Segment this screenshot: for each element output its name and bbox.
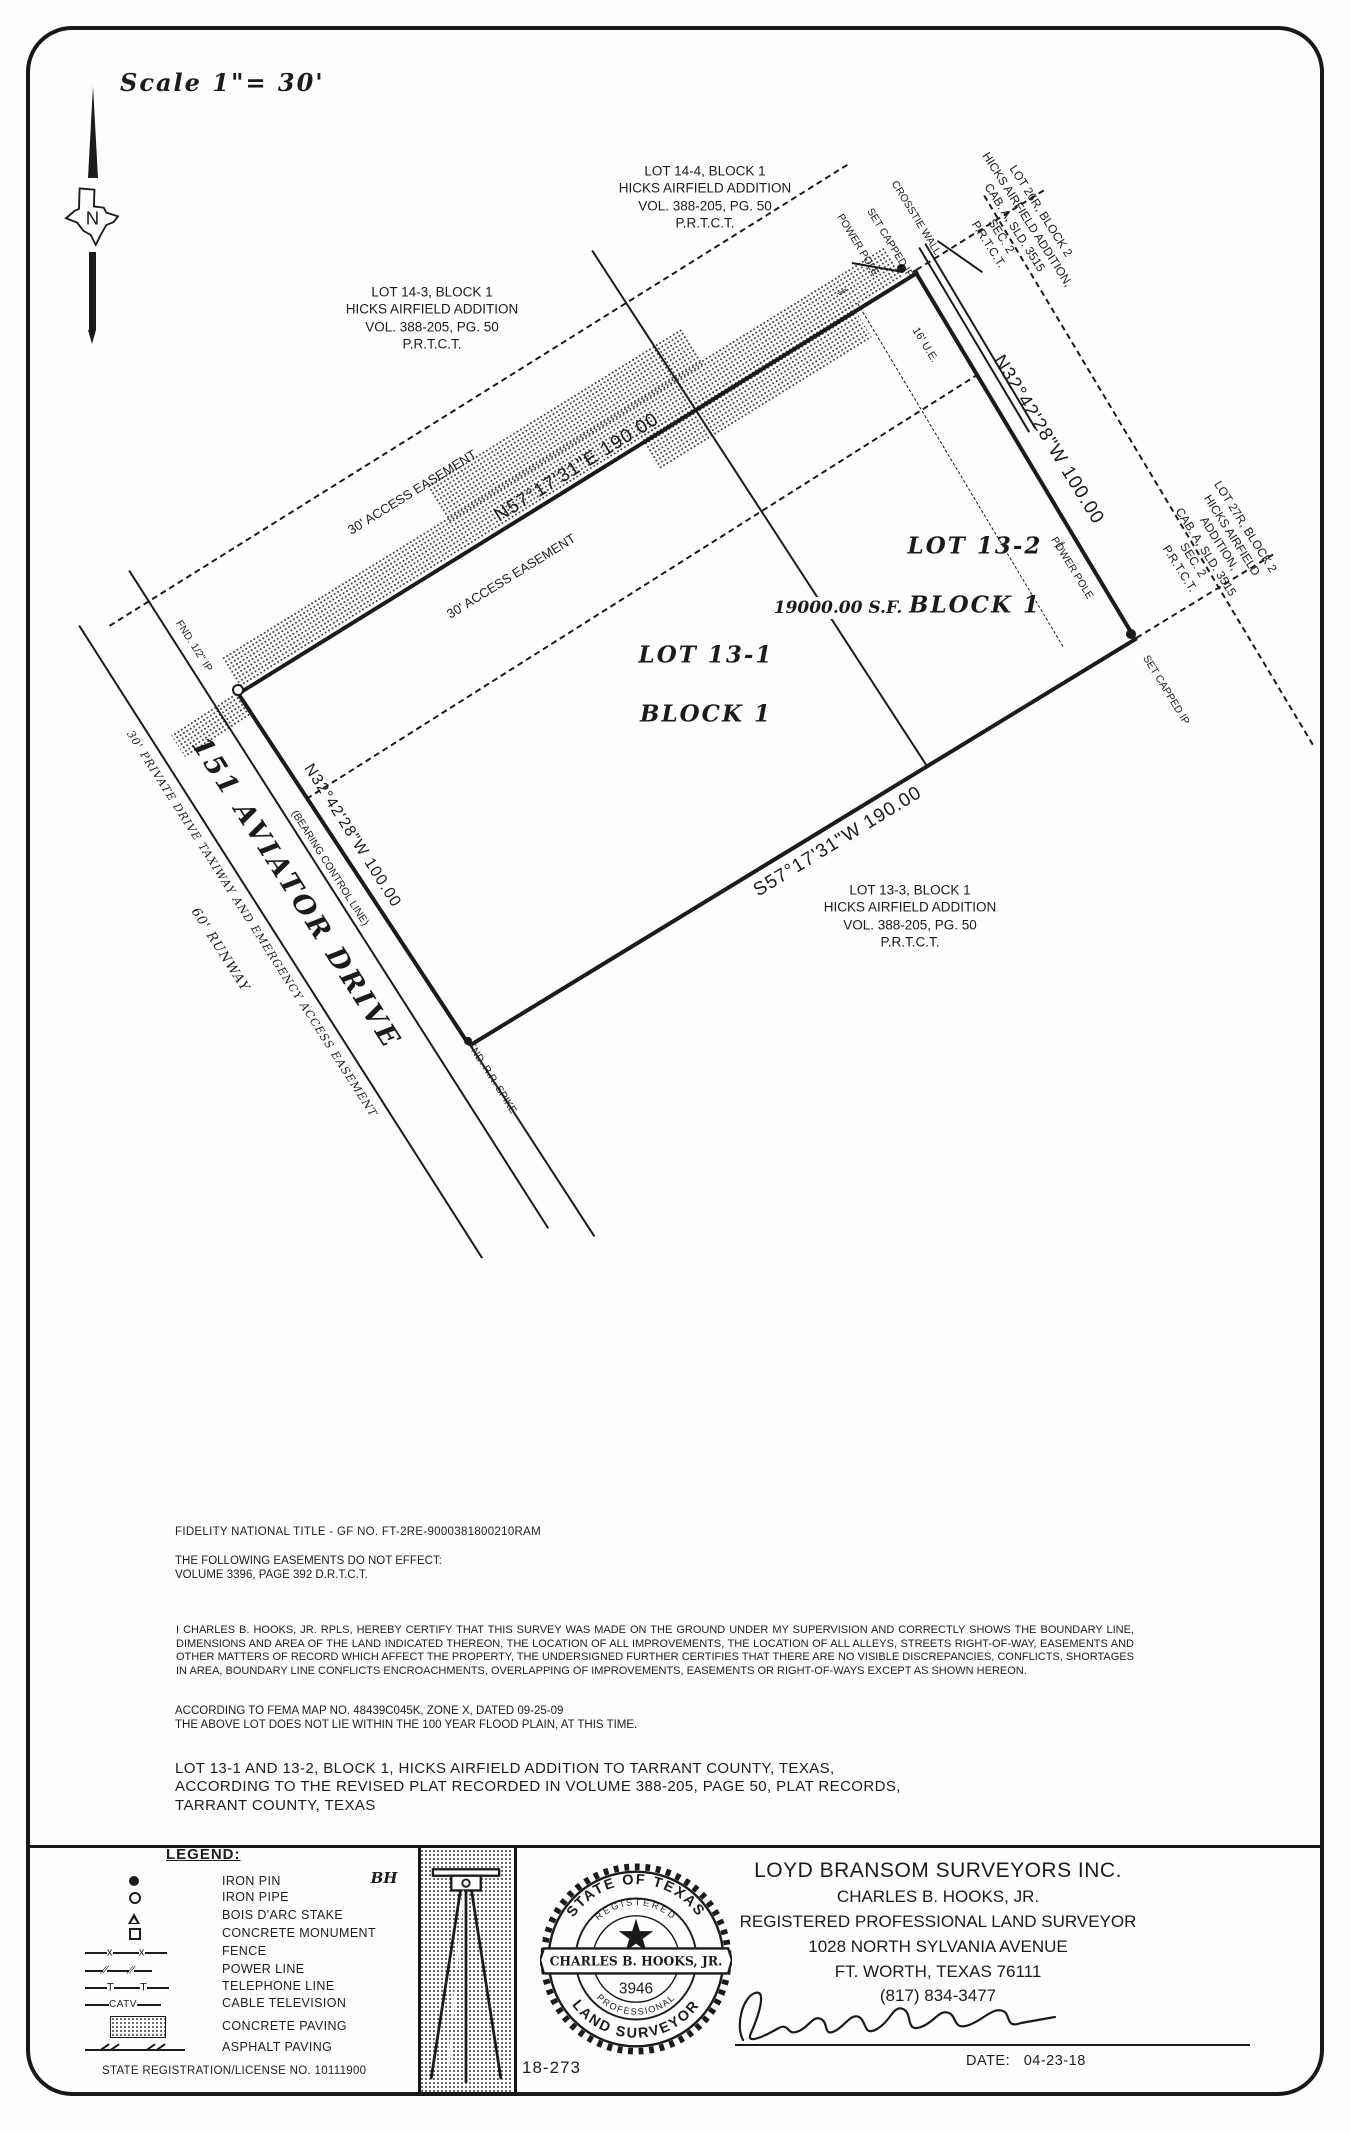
title-company-note: FIDELITY NATIONAL TITLE - GF NO. FT-2RE-…	[175, 1526, 541, 1538]
legend-symbol-bois-darc-stake-inner	[131, 1918, 137, 1923]
utility-easement-label: 16' U.E.	[910, 325, 941, 364]
tripod-panel	[420, 1849, 512, 2092]
legend-symbol-iron-pin	[129, 1876, 139, 1886]
adjoiner-lot-13-3: LOT 13-3, BLOCK 1 HICKS AIRFIELD ADDITIO…	[824, 881, 997, 950]
company-city: FT. WORTH, TEXAS 76111	[835, 1962, 1042, 1982]
legend-symbol-catv-line: CATV	[85, 1997, 161, 2011]
date-value: 04-23-18	[1024, 2053, 1086, 2069]
legend-symbol-telephone-line: TT	[85, 1980, 169, 1994]
lot-13-1-block: BLOCK 1	[639, 700, 774, 729]
tripod-illustration	[420, 1849, 512, 2092]
private-drive-easement-label: 30' PRIVATE DRIVE TAXIWAY AND EMERGENCY …	[124, 728, 380, 1119]
lot-13-2-number: LOT 13-2	[908, 532, 1043, 561]
legend-label: TELEPHONE LINE	[222, 1979, 335, 1993]
legend-symbol-concrete-monument	[129, 1928, 141, 1940]
seal-name: CHARLES B. HOOKS, JR.	[550, 1954, 723, 1970]
leader-line	[937, 240, 983, 273]
set-capped-ip-label: SET CAPPED IP	[1140, 653, 1192, 727]
legend-symbol-power-line: ∕∕∕∕	[85, 1963, 152, 1977]
north-arrow-tail-tip	[88, 330, 96, 344]
legend-symbol-iron-pipe	[129, 1892, 141, 1904]
adjoiner-lot-14-4: LOT 14-4, BLOCK 1 HICKS AIRFIELD ADDITIO…	[619, 162, 792, 231]
certification-note: I CHARLES B. HOOKS, JR. RPLS, HEREBY CER…	[176, 1624, 1134, 1679]
lot-13-1-label: LOT 13-1 BLOCK 1	[639, 611, 774, 758]
telephone-mark: T	[140, 1982, 147, 1994]
catv-mark: CATV	[109, 1999, 137, 2010]
legend-title: LEGEND:	[166, 1846, 241, 1863]
power-pole-label: POWER POLE	[1048, 535, 1095, 601]
legend-label: POWER LINE	[222, 1962, 305, 1976]
date-row: DATE: 04-23-18	[966, 2053, 1086, 2069]
surveyor-seal: STATE OF TEXAS LAND SURVEYOR REGISTERED …	[540, 1860, 732, 2058]
lot-13-2-label: LOT 13-2 BLOCK 1	[908, 502, 1043, 649]
legend-label: CABLE TELEVISION	[222, 1996, 346, 2010]
road-edge-line	[129, 570, 549, 1229]
seal-number: 3946	[619, 1981, 653, 1998]
company-surveyor: CHARLES B. HOOKS, JR.	[837, 1887, 1039, 1907]
found-iron-pipe-marker	[232, 684, 244, 696]
lot-13-1-number: LOT 13-1	[639, 641, 774, 670]
job-number: 18-273	[522, 2058, 581, 2078]
svg-text:REGISTERED: REGISTERED	[593, 1897, 679, 1922]
survey-plat-page: Scale 1"= 30' N ∕∕ ∕∕ N57°17'31"E 190.00…	[0, 0, 1350, 2133]
surveyor-signature	[725, 1985, 1105, 2050]
legend-symbol-concrete-paving	[110, 2016, 166, 2038]
found-iron-pipe-label: FND. 1/2" IP	[173, 618, 215, 674]
state-registration-note: STATE REGISTRATION/LICENSE NO. 10111900	[102, 2065, 366, 2077]
set-capped-ip-marker	[1126, 629, 1136, 639]
legend-label: BOIS D'ARC STAKE	[222, 1908, 343, 1922]
seal-star-icon	[619, 1919, 654, 1952]
texas-outline-icon: N	[60, 186, 124, 248]
legend-bh-note: BH	[371, 1869, 398, 1887]
legend-label: CONCRETE MONUMENT	[222, 1926, 376, 1940]
adjoiner-lot-14-3: LOT 14-3, BLOCK 1 HICKS AIRFIELD ADDITIO…	[346, 283, 519, 352]
legend-symbol-fence: xx	[85, 1945, 167, 1959]
boundary-line-se	[470, 637, 1138, 1047]
legend-label: CONCRETE PAVING	[222, 2019, 347, 2033]
adjoiner-lot-26r: LOT 26R, BLOCK 2 HICKS AIRFIELD ADDITION…	[939, 141, 1089, 315]
road-edge-line	[79, 625, 483, 1258]
company-name: LOYD BRANSOM SURVEYORS INC.	[754, 1859, 1122, 1883]
legend-label: ASPHALT PAVING	[222, 2040, 332, 2054]
north-arrow-tail	[89, 252, 96, 330]
scale-label: Scale 1"= 30'	[120, 68, 325, 97]
easements-note: THE FOLLOWING EASEMENTS DO NOT EFFECT: V…	[175, 1554, 442, 1582]
telephone-mark: T	[107, 1982, 114, 1994]
found-rr-spike-label: FND. R.R. SPIKE	[465, 1040, 519, 1116]
boundary-line-ne	[239, 270, 919, 694]
north-arrow-needle	[88, 86, 98, 178]
date-label: DATE:	[966, 2053, 1010, 2069]
lot-13-2-block: BLOCK 1	[908, 591, 1043, 620]
lot-area-label: 19000.00 S.F.	[768, 597, 909, 619]
legend-label: IRON PIN	[222, 1874, 281, 1888]
legend-label: FENCE	[222, 1944, 266, 1958]
legal-description: LOT 13-1 AND 13-2, BLOCK 1, HICKS AIRFIE…	[175, 1760, 901, 1815]
fema-note: ACCORDING TO FEMA MAP NO. 48439C045K, ZO…	[175, 1704, 637, 1732]
seal-registered: REGISTERED	[593, 1897, 679, 1922]
signature-line	[735, 2044, 1250, 2046]
strip-divider-vertical	[514, 1848, 517, 2094]
legend-label: IRON PIPE	[222, 1890, 289, 1904]
north-letter: N	[86, 207, 99, 228]
company-role: REGISTERED PROFESSIONAL LAND SURVEYOR	[740, 1912, 1137, 1932]
company-address: 1028 NORTH SYLVANIA AVENUE	[808, 1937, 1068, 1957]
